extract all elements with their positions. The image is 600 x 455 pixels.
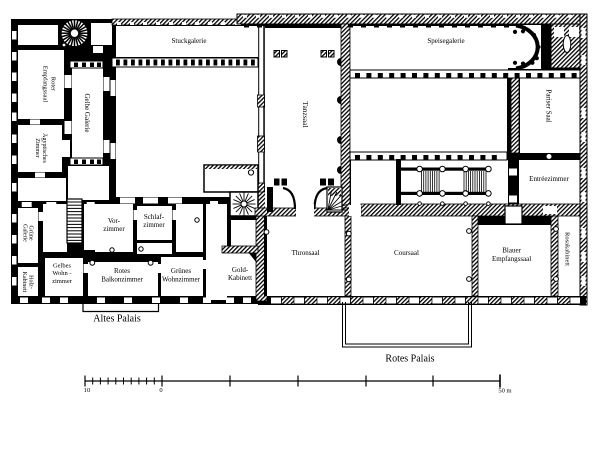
svg-text:Empfangssaal: Empfangssaal <box>492 255 531 263</box>
svg-text:Schlaf-: Schlaf- <box>144 213 165 221</box>
svg-text:Ägyptisches: Ägyptisches <box>41 133 48 163</box>
svg-text:Rotes: Rotes <box>114 267 130 275</box>
svg-text:Roter: Roter <box>50 77 57 92</box>
svg-text:zimmer: zimmer <box>103 225 125 233</box>
svg-text:Altes Palais: Altes Palais <box>93 314 141 325</box>
svg-text:Holz-: Holz- <box>27 275 33 289</box>
svg-text:Balkonzimmer: Balkonzimmer <box>101 276 143 284</box>
svg-text:Tanzsaal: Tanzsaal <box>301 101 310 127</box>
svg-text:Pariser Saal: Pariser Saal <box>545 89 553 122</box>
svg-text:10: 10 <box>84 387 91 394</box>
svg-text:Speisegalerie: Speisegalerie <box>427 37 464 45</box>
svg-text:Grünes: Grünes <box>171 267 191 275</box>
svg-text:Gold-: Gold- <box>232 266 249 274</box>
svg-text:Entréezimmer: Entréezimmer <box>529 175 569 183</box>
svg-text:zimmer: zimmer <box>52 278 73 285</box>
svg-text:Gelbes: Gelbes <box>53 263 72 270</box>
svg-text:zimmer: zimmer <box>143 221 165 229</box>
svg-text:Wohnzimmer: Wohnzimmer <box>162 276 201 284</box>
svg-text:Thronsaal: Thronsaal <box>292 249 320 257</box>
svg-text:Coursaal: Coursaal <box>394 249 419 257</box>
svg-text:Rosakabinett: Rosakabinett <box>564 232 571 266</box>
svg-text:Gelbe Galerie: Gelbe Galerie <box>83 93 91 132</box>
svg-text:Zimmer: Zimmer <box>34 138 40 157</box>
svg-text:Wohn -: Wohn - <box>52 270 71 277</box>
svg-text:Kabinett: Kabinett <box>21 272 27 293</box>
svg-text:Galerie: Galerie <box>21 224 27 242</box>
svg-text:Rotes Palais: Rotes Palais <box>385 354 434 365</box>
svg-text:0: 0 <box>159 387 162 394</box>
svg-text:Empfangssaal: Empfangssaal <box>42 66 49 103</box>
svg-text:50 m: 50 m <box>498 388 511 395</box>
svg-text:Vor-: Vor- <box>108 217 121 225</box>
svg-text:Kabinett: Kabinett <box>228 274 252 282</box>
svg-text:Blauer: Blauer <box>502 247 521 255</box>
svg-text:Stuckgalerie: Stuckgalerie <box>172 37 207 45</box>
